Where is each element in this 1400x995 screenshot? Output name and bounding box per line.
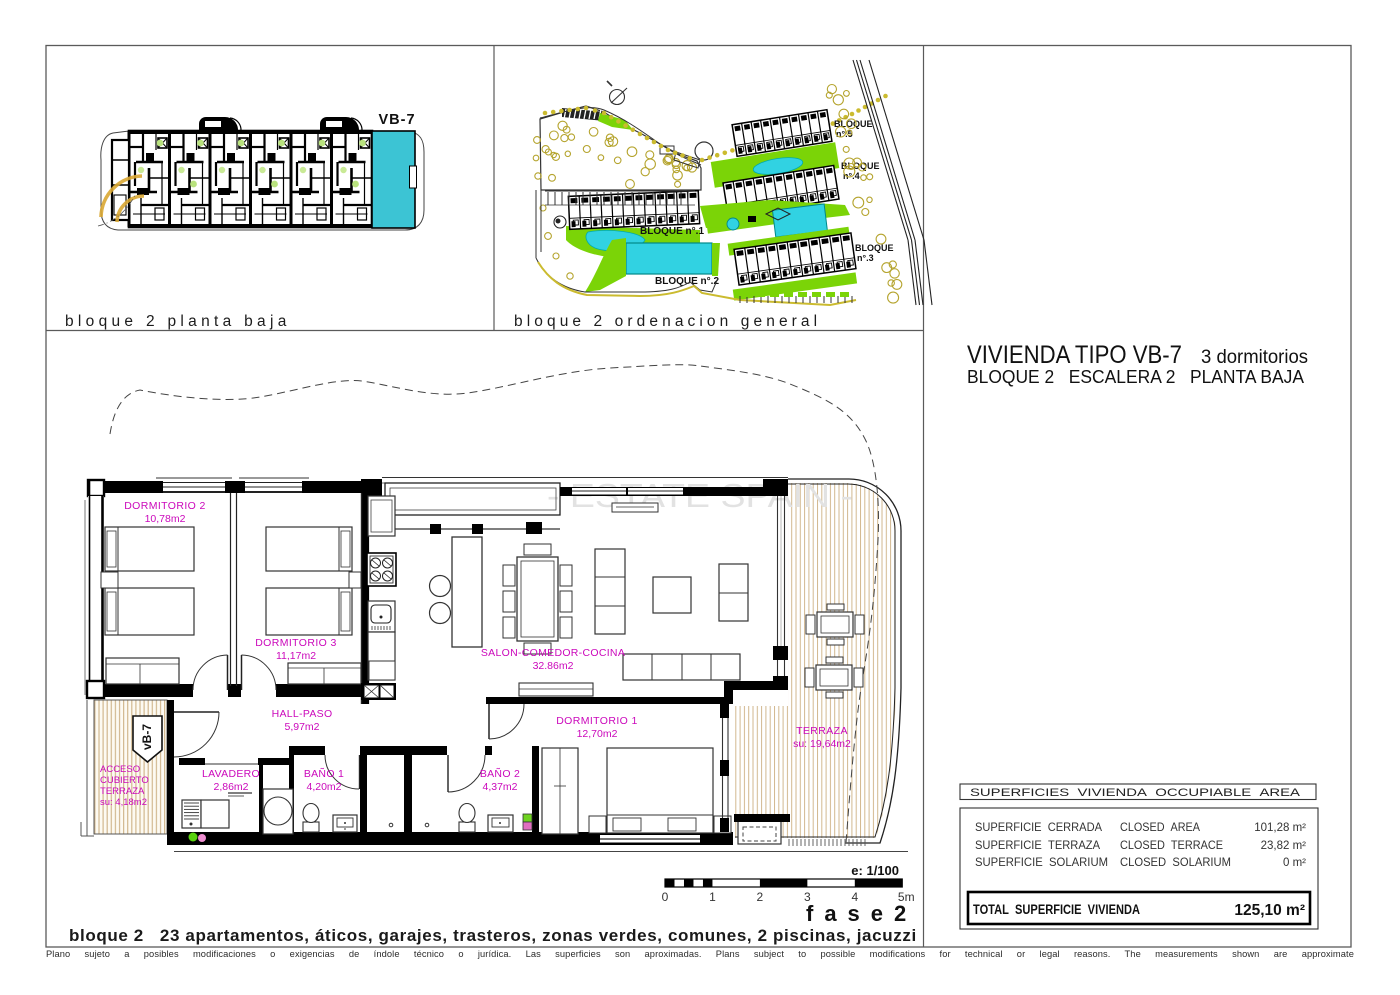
svg-text:n°.3: n°.3 [857, 253, 874, 263]
svg-text:11,17m2: 11,17m2 [276, 650, 316, 662]
svg-text:bloque 2 23 apartamentos, át: bloque 2 23 apartamentos, áticos, garaje… [69, 926, 917, 945]
svg-text:BAÑO 2: BAÑO 2 [480, 767, 520, 780]
svg-text:DORMITORIO 1: DORMITORIO 1 [556, 715, 638, 727]
svg-text:HALL-PASO: HALL-PASO [272, 708, 333, 720]
svg-text:LAVADERO: LAVADERO [202, 768, 260, 780]
svg-text:TERRAZA: TERRAZA [796, 725, 848, 737]
svg-text:1: 1 [709, 890, 716, 904]
svg-text:125,10 m²: 125,10 m² [1234, 902, 1305, 919]
svg-text:su: 4,18m2: su: 4,18m2 [100, 797, 147, 808]
svg-text:0: 0 [662, 890, 669, 904]
svg-text:3 dormitorios: 3 dormitorios [1201, 346, 1308, 368]
svg-text:2,86m2: 2,86m2 [213, 781, 248, 793]
svg-text:e: 1/100: e: 1/100 [851, 863, 899, 878]
svg-text:101,28 m²: 101,28 m² [1254, 822, 1306, 834]
svg-text:ACCESO: ACCESO [100, 764, 140, 775]
svg-text:SUPERFICIE SOLARIUM: SUPERFICIE SOLARIUM [975, 857, 1108, 869]
svg-text:4,20m2: 4,20m2 [306, 781, 341, 793]
svg-text:32.86m2: 32.86m2 [533, 660, 574, 672]
svg-text:VIVIENDA TIPO VB-7: VIVIENDA TIPO VB-7 [967, 341, 1182, 369]
svg-text:bloque 2 planta baja: bloque 2 planta baja [65, 313, 291, 330]
svg-text:SUPERFICIE TERRAZA: SUPERFICIE TERRAZA [975, 840, 1100, 852]
svg-text:CUBIERTO: CUBIERTO [100, 775, 149, 786]
svg-text:TERRAZA: TERRAZA [100, 786, 145, 797]
svg-text:SALON-COMEDOR-COCINA: SALON-COMEDOR-COCINA [481, 647, 625, 659]
svg-text:2: 2 [757, 890, 764, 904]
svg-text:BLOQUE: BLOQUE [855, 243, 894, 253]
svg-text:SUPERFICIES VIVIENDA OCCUPIA: SUPERFICIES VIVIENDA OCCUPIABLE AREA [970, 787, 1301, 799]
svg-text:fase2: fase2 [806, 901, 917, 926]
svg-text:BAÑO 1: BAÑO 1 [304, 767, 344, 780]
svg-text:CLOSED TERRACE: CLOSED TERRACE [1120, 840, 1223, 852]
svg-text:DORMITORIO 2: DORMITORIO 2 [124, 500, 206, 512]
svg-text:BLOQUE n°.1: BLOQUE n°.1 [640, 226, 704, 237]
svg-text:BLOQUE 2 ESCALERA 2 PLANTA: BLOQUE 2 ESCALERA 2 PLANTA BAJA [967, 367, 1304, 387]
svg-text:10,78m2: 10,78m2 [145, 513, 186, 525]
svg-text:4,37m2: 4,37m2 [482, 781, 517, 793]
svg-text:12,70m2: 12,70m2 [577, 728, 618, 740]
svg-text:SUPERFICIE CERRADA: SUPERFICIE CERRADA [975, 822, 1102, 834]
svg-text:TOTAL SUPERFICIE VIVIENDA: TOTAL SUPERFICIE VIVIENDA [973, 902, 1140, 917]
svg-text:vB-7: vB-7 [140, 724, 154, 750]
svg-text:bloque 2 ordenacion general: bloque 2 ordenacion general [514, 313, 821, 330]
svg-text:CLOSED AREA: CLOSED AREA [1120, 822, 1200, 834]
svg-text:0 m²: 0 m² [1283, 857, 1306, 869]
svg-text:CLOSED SOLARIUM: CLOSED SOLARIUM [1120, 857, 1231, 869]
svg-text:su: 19,64m2: su: 19,64m2 [793, 738, 851, 750]
svg-text:VB-7: VB-7 [378, 112, 415, 128]
svg-text:DORMITORIO 3: DORMITORIO 3 [255, 637, 337, 649]
svg-text:BLOQUE n°.2: BLOQUE n°.2 [655, 276, 719, 287]
svg-text:5,97m2: 5,97m2 [284, 721, 319, 733]
svg-text:23,82 m²: 23,82 m² [1261, 840, 1307, 852]
